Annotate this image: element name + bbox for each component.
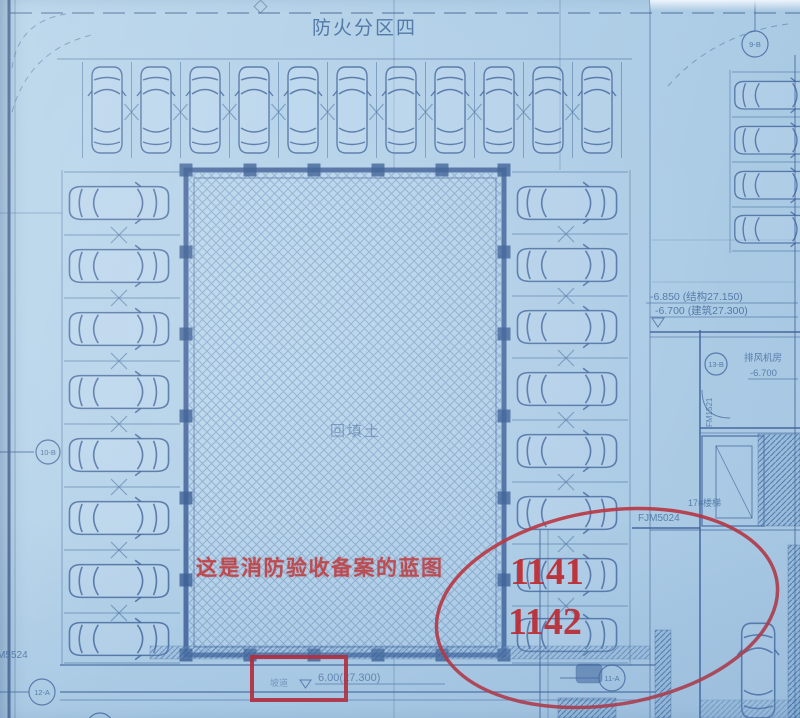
car-icon xyxy=(69,245,168,286)
car-icon xyxy=(69,434,168,475)
car-icon xyxy=(517,244,616,285)
stair-box xyxy=(702,436,764,526)
blueprint-plan: 10-B 9-B 13-B 11-A 12-A 防火分区四 回填土 -6.850… xyxy=(0,0,800,718)
grid-bubble-label: 12-A xyxy=(34,688,50,697)
grid-bubble-label: 9-B xyxy=(749,40,761,49)
car-icon xyxy=(69,560,168,601)
elevation-label: -6.850 (结构27.150) xyxy=(650,290,743,303)
car-icon xyxy=(517,306,616,347)
car-icon xyxy=(382,67,420,153)
fan-room-label: 排风机房 xyxy=(744,352,782,364)
stair-label: 17#楼梯 xyxy=(688,497,721,508)
car-icon xyxy=(480,67,518,153)
fan-room-elevation: -6.700 xyxy=(750,368,777,379)
car-icon xyxy=(735,212,800,247)
car-icon xyxy=(88,67,126,153)
grid-bubble-label: 10-B xyxy=(40,448,56,457)
elevation-label: -6.700 (建筑27.300) xyxy=(655,304,748,317)
blueprint-photo: 10-B 9-B 13-B 11-A 12-A 防火分区四 回填土 -6.850… xyxy=(0,0,800,718)
backfill-area xyxy=(180,164,511,662)
parking-space-number: 1142 xyxy=(508,601,582,643)
grid-bubble-label: 13-B xyxy=(708,360,724,369)
car-icon xyxy=(69,497,168,538)
car-icon xyxy=(431,67,469,153)
car-icon xyxy=(235,67,273,153)
car-icon xyxy=(69,308,168,349)
car-icon xyxy=(517,430,616,471)
car-icon xyxy=(69,371,168,412)
car-icon xyxy=(735,78,800,113)
parking-column-left xyxy=(69,182,168,659)
bottom-elevation-label: 6.00(27.300) xyxy=(318,672,380,684)
grid-bubble-label: 11-A xyxy=(604,674,619,683)
column-block xyxy=(576,664,602,683)
car-icon xyxy=(735,168,800,203)
car-icon xyxy=(517,368,616,409)
car-icon xyxy=(69,182,168,223)
car-icon xyxy=(517,182,616,223)
parking-space-number: 1141 xyxy=(510,551,584,593)
door-tag-vertical: FM1521 xyxy=(705,397,714,427)
door-tag: FJM5524 xyxy=(0,650,28,661)
door-tag: FJM5024 xyxy=(638,513,680,524)
car-icon xyxy=(333,67,371,153)
grid-bubble xyxy=(87,713,113,718)
car-icon xyxy=(735,123,800,158)
car-icon xyxy=(137,67,175,153)
car-icon xyxy=(186,67,224,153)
car-icon xyxy=(578,67,616,153)
level-triangle-icon xyxy=(300,680,311,688)
backfill-label: 回填土 xyxy=(330,423,381,440)
ramp-label: 坡道 xyxy=(270,677,288,688)
red-note-text: 这是消防验收备案的蓝图 xyxy=(196,556,444,580)
parking-row-top xyxy=(88,67,616,153)
car-icon xyxy=(284,67,322,153)
level-triangle-icon xyxy=(652,318,664,327)
car-icon xyxy=(529,67,567,153)
fire-zone-label: 防火分区四 xyxy=(312,17,417,39)
